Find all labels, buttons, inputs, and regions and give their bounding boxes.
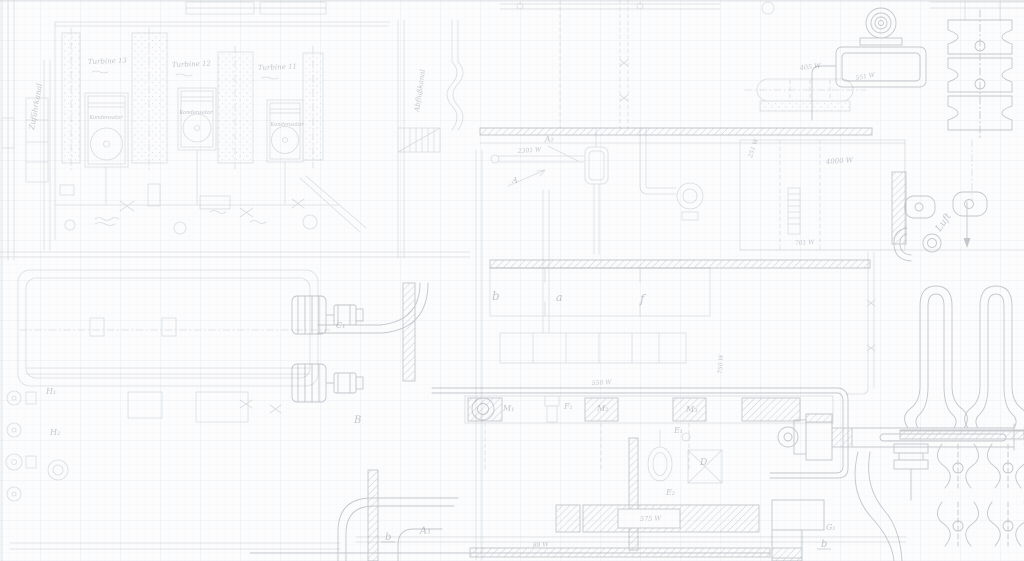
label-turbine-11: Turbine 11 [258,63,297,72]
point-label-b: B [353,415,361,426]
engineering-drawing: Turbine 13 Turbine 12 Turbine 11 Kondens… [0,0,1024,561]
label-turbine-12: Turbine 12 [172,60,212,69]
label-kondensator-3: Kondensator [269,122,304,128]
blueprint-page: Turbine 13 Turbine 12 Turbine 11 Kondens… [0,0,1024,561]
flow-label-pump-header: 550 W [592,379,613,387]
point-label-m1: M₁ [502,404,514,413]
point-label-m2: M₂ [596,404,608,413]
point-label-m3: M₃ [685,405,697,414]
point-label-a1: A₁ [418,525,431,537]
point-label-f1: F₁ [563,402,573,411]
point-label-c1: C₁ [336,321,345,330]
basin-label-b: b [492,289,500,303]
point-label-a: A [511,176,518,185]
flow-label-intake-bottom: 701 W [795,239,816,247]
point-label-h2: H₂ [49,428,60,437]
point-label-e1: E₁ [673,426,683,435]
point-label-a2: A₂ [543,134,554,144]
flow-label-drain-line: 88 W [533,541,550,549]
basin-label-a: a [556,291,563,304]
section-label-b2: b [821,539,827,550]
label-kondensator-1: Kondensator [88,115,123,121]
point-label-g1: G₁ [826,523,836,532]
flow-label-discharge-box: 575 W [640,514,663,523]
point-label-e2: E₂ [665,488,675,497]
point-label-d: D [699,458,707,468]
section-label-b: b [385,532,391,543]
label-turbine-13: Turbine 13 [88,57,128,66]
label-kondensator-2: Kondensator [178,110,213,116]
flow-label-pump-riser: 750 W [717,353,725,374]
point-label-h1: H₁ [45,387,56,396]
